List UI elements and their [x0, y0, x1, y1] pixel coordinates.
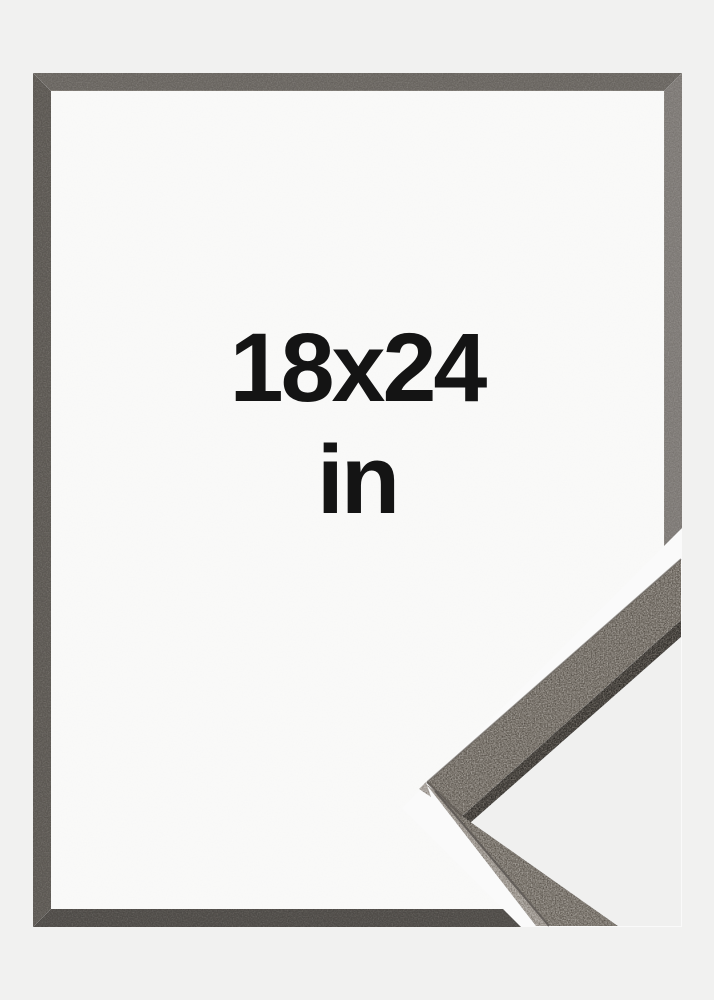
unit-label: in: [0, 424, 714, 536]
frame-side-top: [33, 73, 682, 91]
product-image-canvas: 18x24 in: [0, 0, 714, 1000]
size-label-block: 18x24 in: [0, 312, 714, 536]
size-label: 18x24: [0, 312, 714, 424]
